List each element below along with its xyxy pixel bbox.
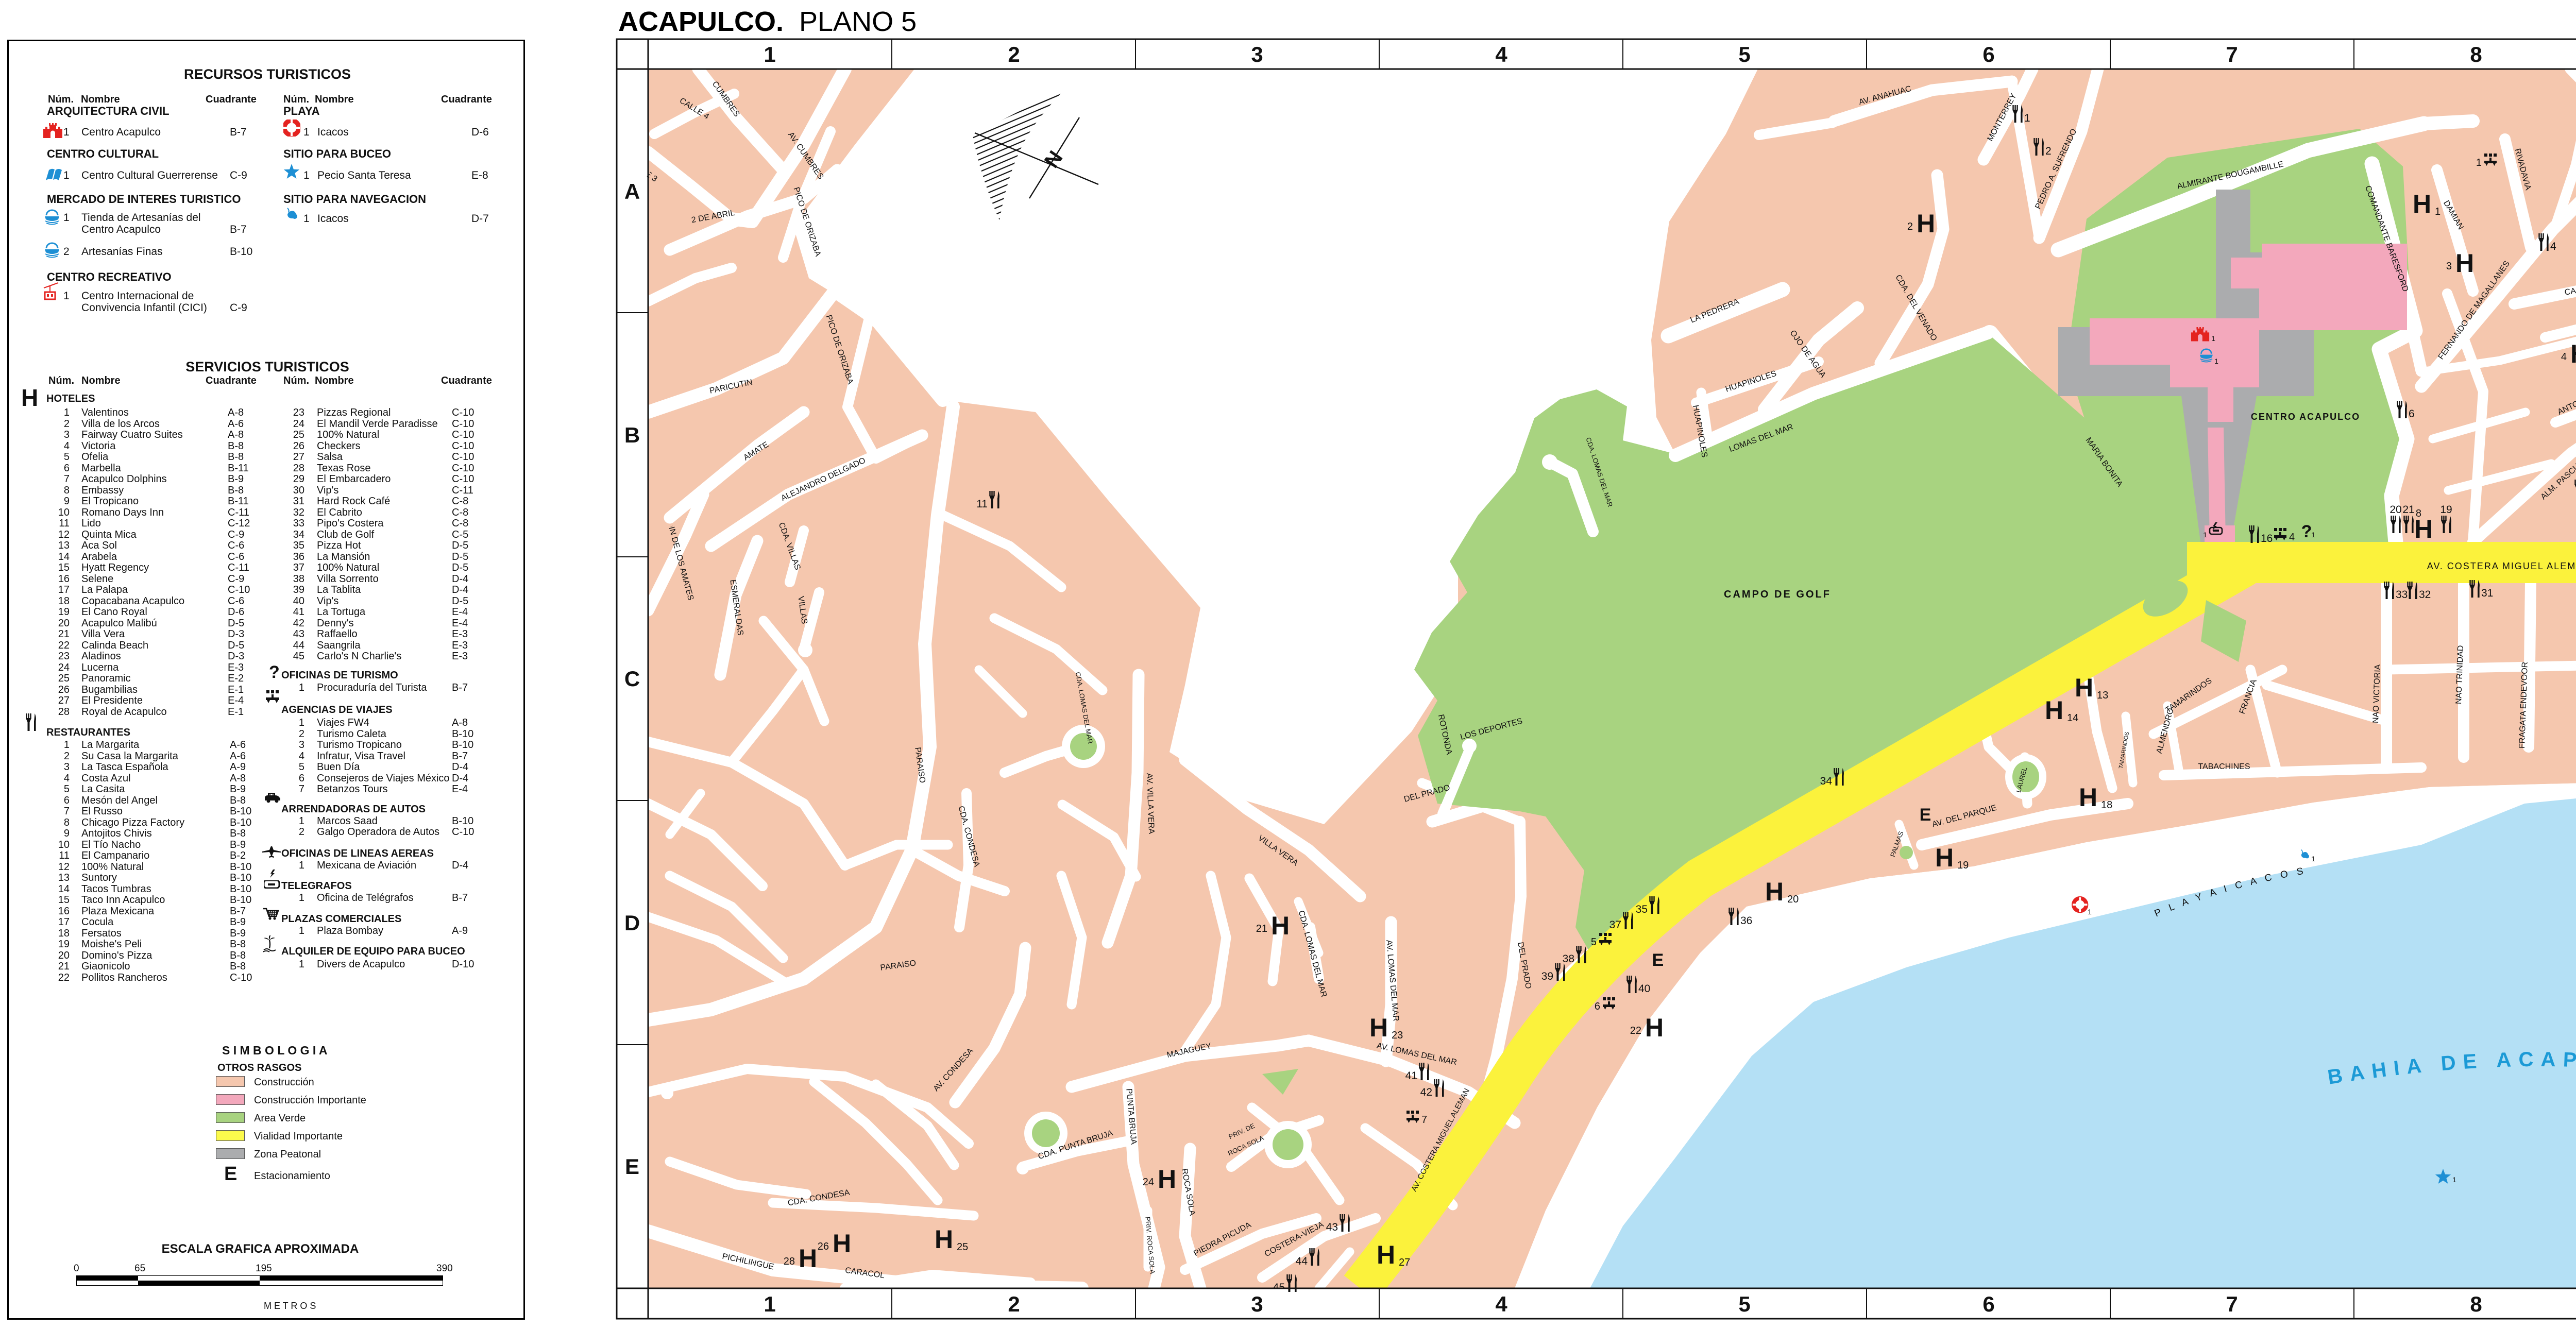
svg-text:7: 7	[1421, 1114, 1427, 1126]
svg-text:1: 1	[2476, 157, 2482, 168]
svg-text:6: 6	[1982, 1292, 1994, 1316]
svg-text:2: 2	[1008, 42, 1020, 66]
svg-text:8: 8	[2470, 1292, 2482, 1316]
svg-text:39: 39	[1541, 970, 1553, 982]
svg-text:28: 28	[784, 1256, 795, 1267]
svg-text:H: H	[799, 1244, 817, 1273]
svg-text:B: B	[624, 423, 640, 447]
svg-text:32: 32	[2419, 589, 2431, 601]
svg-text:3: 3	[2446, 261, 2452, 272]
svg-text:1: 1	[2203, 531, 2207, 539]
svg-text:37: 37	[1609, 919, 1621, 931]
svg-text:21: 21	[1256, 923, 1267, 934]
svg-text:1: 1	[764, 42, 775, 66]
svg-text:E: E	[625, 1154, 639, 1179]
svg-text:H: H	[1271, 911, 1290, 940]
svg-text:27: 27	[1399, 1257, 1410, 1268]
svg-text:1: 1	[2088, 908, 2092, 916]
svg-text:1: 1	[2311, 531, 2315, 539]
svg-text:5: 5	[1591, 936, 1597, 948]
svg-text:4: 4	[1495, 42, 1507, 66]
svg-text:H: H	[1765, 877, 1784, 906]
svg-text:1: 1	[2452, 1175, 2456, 1184]
svg-text:H: H	[1645, 1013, 1664, 1042]
svg-text:19: 19	[1957, 860, 1969, 871]
svg-text:25: 25	[957, 1241, 968, 1253]
svg-text:H: H	[1369, 1013, 1388, 1042]
svg-text:22: 22	[1630, 1025, 1641, 1036]
svg-text:H: H	[2455, 249, 2474, 278]
svg-text:13: 13	[2097, 690, 2108, 701]
svg-text:14: 14	[2067, 712, 2078, 724]
svg-text:4: 4	[2550, 241, 2556, 252]
svg-text:42: 42	[1420, 1086, 1432, 1098]
svg-text:CAMPO DE GOLF: CAMPO DE GOLF	[1724, 589, 1831, 600]
svg-text:6: 6	[2409, 408, 2415, 420]
svg-text:6: 6	[1595, 1001, 1600, 1012]
svg-text:1: 1	[2311, 855, 2315, 863]
svg-text:36: 36	[1740, 915, 1752, 927]
svg-text:2: 2	[1907, 221, 1913, 232]
svg-text:7: 7	[2226, 42, 2238, 66]
svg-text:21: 21	[2402, 504, 2414, 516]
svg-text:4: 4	[1495, 1292, 1507, 1316]
svg-text:H: H	[1377, 1240, 1395, 1269]
svg-text:2: 2	[1008, 1292, 1020, 1316]
svg-text:31: 31	[2481, 587, 2493, 599]
svg-text:43: 43	[1326, 1221, 1338, 1233]
svg-text:20: 20	[2389, 504, 2401, 516]
svg-text:H: H	[1917, 209, 1935, 238]
svg-text:33: 33	[2396, 589, 2408, 601]
svg-text:TABACHINES: TABACHINES	[2198, 762, 2250, 771]
svg-text:1: 1	[764, 1292, 775, 1316]
svg-text:7: 7	[2226, 1292, 2238, 1316]
svg-text:11: 11	[976, 498, 988, 510]
svg-text:CENTRO ACAPULCO: CENTRO ACAPULCO	[2251, 412, 2360, 422]
svg-text:44: 44	[1296, 1255, 1308, 1267]
svg-text:2: 2	[2045, 145, 2052, 157]
svg-text:4: 4	[2561, 351, 2567, 363]
svg-text:20: 20	[1787, 894, 1799, 905]
svg-text:24: 24	[1143, 1177, 1154, 1188]
svg-text:8: 8	[2470, 42, 2482, 66]
svg-text:?: ?	[2301, 522, 2312, 541]
svg-text:C: C	[624, 667, 640, 691]
svg-text:8: 8	[2416, 508, 2421, 519]
svg-text:1: 1	[2024, 112, 2030, 124]
svg-text:5: 5	[1738, 42, 1750, 66]
svg-text:19: 19	[2440, 504, 2452, 516]
svg-text:H: H	[2079, 783, 2097, 812]
svg-text:H: H	[2075, 673, 2093, 702]
svg-text:D: D	[624, 911, 640, 935]
svg-text:1: 1	[2214, 357, 2218, 365]
svg-text:3: 3	[1251, 42, 1263, 66]
svg-text:18: 18	[2101, 799, 2112, 811]
svg-text:H: H	[2413, 190, 2431, 218]
svg-text:41: 41	[1405, 1070, 1417, 1082]
svg-text:34: 34	[1820, 775, 1833, 787]
svg-text:H: H	[2045, 696, 2063, 725]
svg-text:5: 5	[1738, 1292, 1750, 1316]
svg-text:E: E	[1652, 950, 1664, 970]
svg-text:H: H	[1935, 843, 1954, 872]
svg-text:35: 35	[1636, 904, 1648, 915]
svg-text:23: 23	[1392, 1030, 1403, 1041]
svg-text:26: 26	[818, 1241, 829, 1252]
svg-text:A: A	[624, 179, 640, 203]
svg-text:1: 1	[2435, 206, 2441, 217]
svg-text:H: H	[833, 1229, 851, 1258]
svg-text:1: 1	[2211, 334, 2215, 343]
svg-text:E: E	[1920, 805, 1931, 825]
svg-text:40: 40	[1638, 983, 1650, 995]
svg-text:H: H	[1158, 1165, 1176, 1194]
svg-text:H: H	[2570, 339, 2576, 368]
svg-text:38: 38	[1563, 953, 1574, 965]
svg-text:AV. COSTERA MIGUEL ALEMAN: AV. COSTERA MIGUEL ALEMAN	[2427, 561, 2576, 571]
svg-text:3: 3	[1251, 1292, 1263, 1316]
svg-text:6: 6	[1982, 42, 1994, 66]
svg-text:4: 4	[2289, 532, 2295, 543]
svg-text:H: H	[935, 1225, 953, 1254]
svg-text:16: 16	[2261, 533, 2273, 544]
